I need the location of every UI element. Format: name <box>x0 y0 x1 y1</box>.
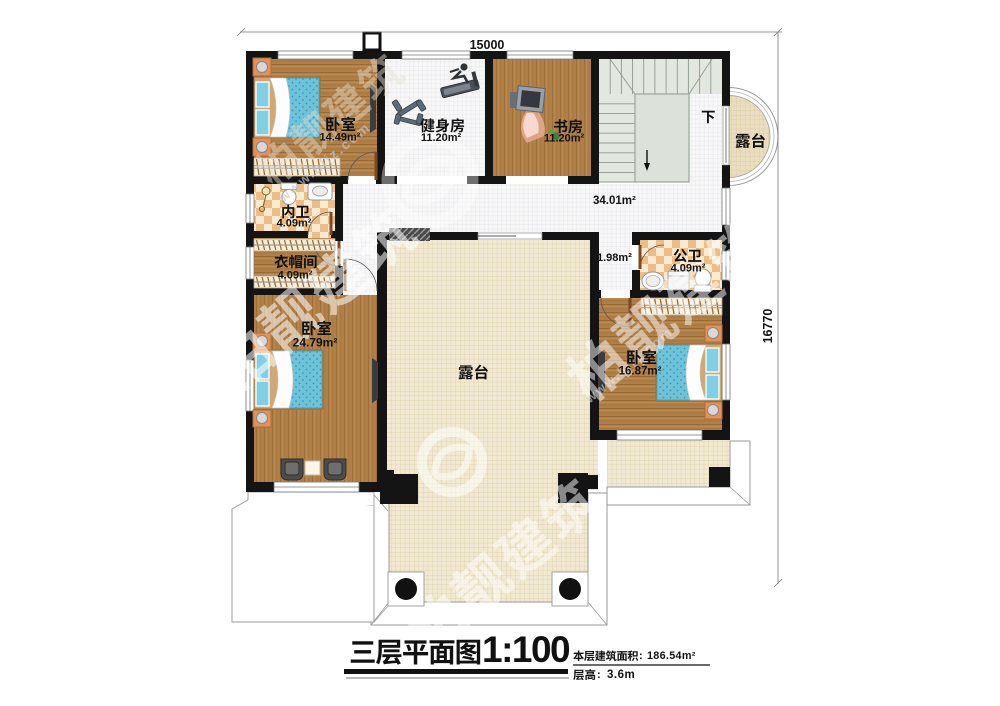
svg-text:3.6m: 3.6m <box>607 669 635 681</box>
svg-text:11.20m²: 11.20m² <box>421 132 462 144</box>
svg-text:4.09m²: 4.09m² <box>277 218 312 230</box>
svg-text::: : <box>597 669 601 681</box>
svg-text:34.01m²: 34.01m² <box>593 195 636 207</box>
svg-text:1.98m²: 1.98m² <box>597 252 632 264</box>
svg-text:16770: 16770 <box>761 309 775 344</box>
svg-text:4.09m²: 4.09m² <box>671 263 706 275</box>
svg-text:15000: 15000 <box>470 38 505 52</box>
svg-text::: : <box>639 650 643 662</box>
svg-text:14.49m²: 14.49m² <box>320 132 361 144</box>
svg-text:24.79m²: 24.79m² <box>293 336 338 350</box>
svg-text:4.09m²: 4.09m² <box>278 270 313 282</box>
svg-text:16.87m²: 16.87m² <box>619 366 662 378</box>
svg-text:1:100: 1:100 <box>482 629 570 670</box>
svg-text:11.20m²: 11.20m² <box>544 133 585 145</box>
svg-text:186.54m²: 186.54m² <box>647 650 696 662</box>
